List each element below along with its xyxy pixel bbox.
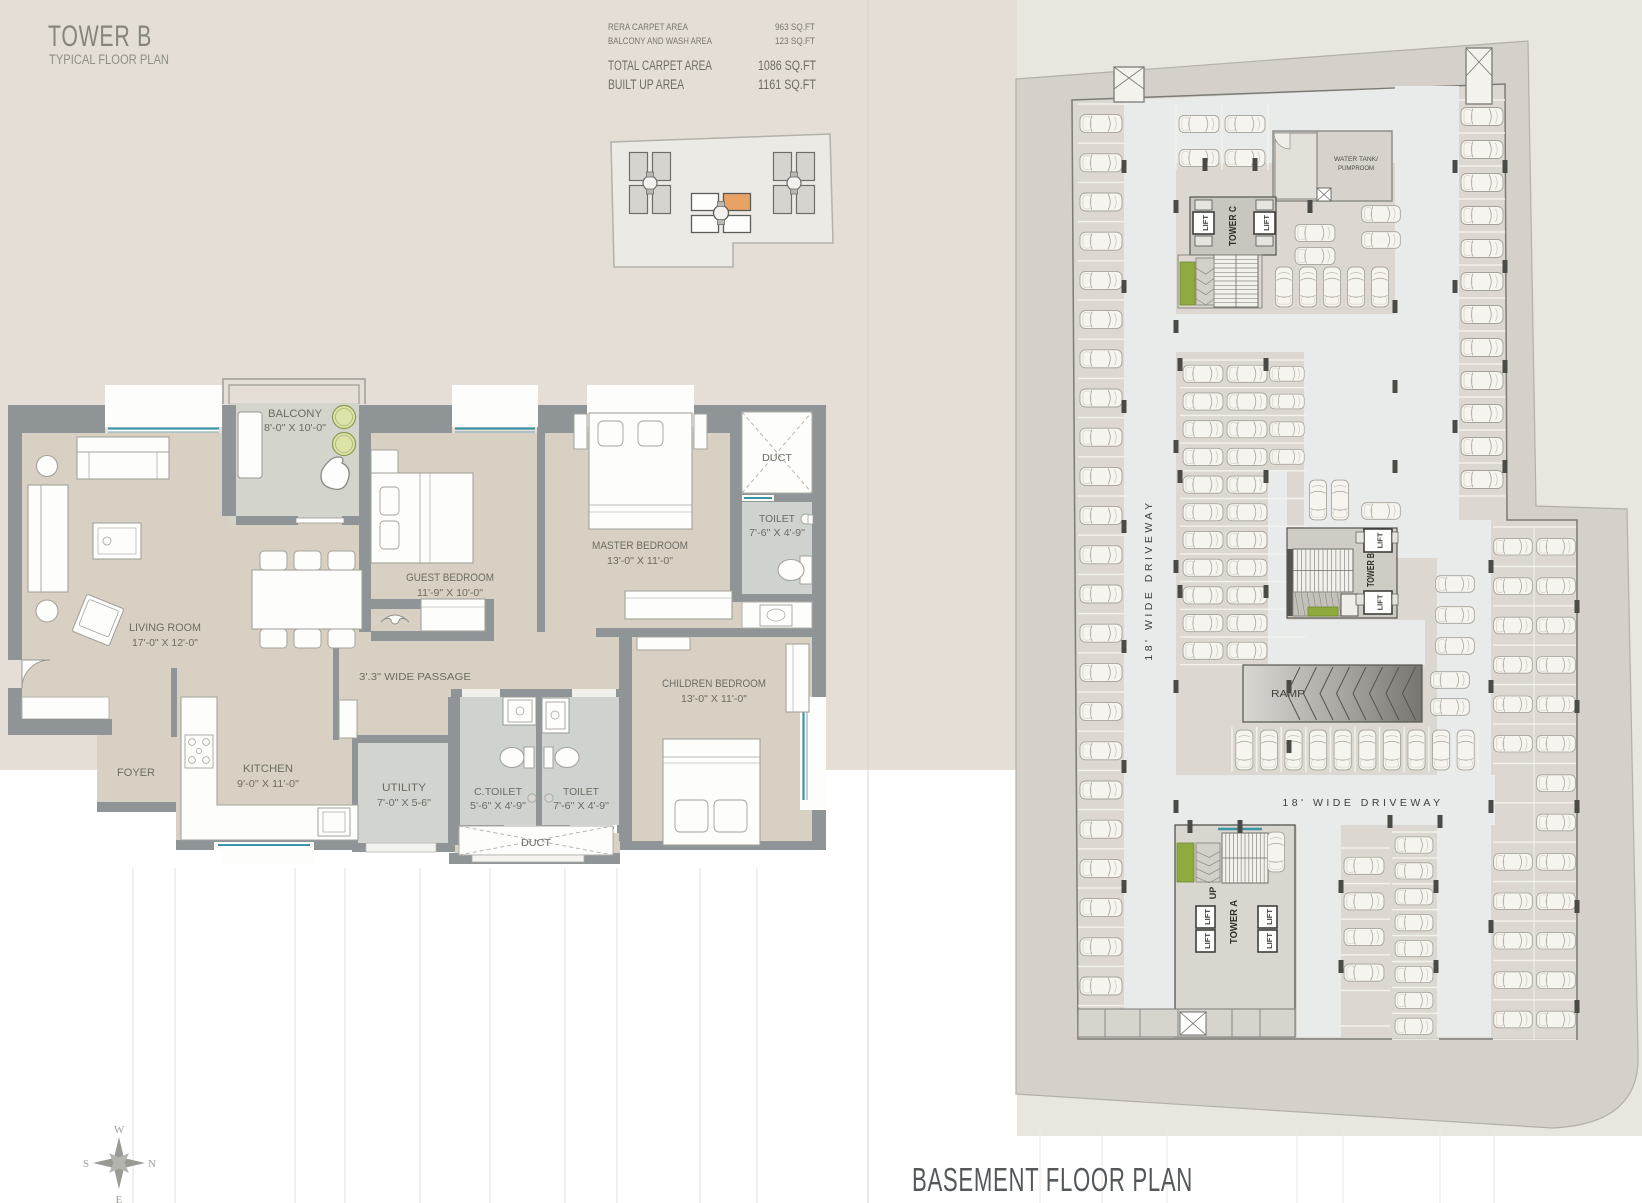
svg-text:CHILDREN BEDROOM: CHILDREN BEDROOM	[662, 678, 766, 690]
svg-text:8'-0" X 10'-0": 8'-0" X 10'-0"	[264, 422, 326, 434]
svg-text:KITCHEN: KITCHEN	[243, 763, 293, 775]
svg-text:LIFT: LIFT	[1203, 933, 1212, 949]
svg-text:LIFT: LIFT	[1203, 909, 1212, 925]
svg-text:13'-0" X 11'-0": 13'-0" X 11'-0"	[607, 555, 673, 567]
svg-text:PUMPROOM: PUMPROOM	[1338, 165, 1374, 172]
svg-text:TOWER B: TOWER B	[1365, 553, 1377, 587]
svg-text:18' WIDE DRIVEWAY: 18' WIDE DRIVEWAY	[1143, 499, 1155, 660]
svg-text:N: N	[148, 1158, 156, 1170]
svg-text:LIVING ROOM: LIVING ROOM	[129, 622, 201, 634]
svg-text:C.TOILET: C.TOILET	[474, 786, 523, 798]
svg-text:7'-0" X 5-6": 7'-0" X 5-6"	[377, 797, 431, 809]
svg-text:GUEST BEDROOM: GUEST BEDROOM	[406, 572, 494, 584]
svg-text:LIFT: LIFT	[1262, 215, 1271, 231]
svg-text:LIFT: LIFT	[1201, 215, 1210, 231]
svg-text:UTILITY: UTILITY	[382, 782, 427, 794]
svg-text:RERA CARPET AREA: RERA CARPET AREA	[608, 22, 689, 33]
svg-text:TOTAL CARPET AREA: TOTAL CARPET AREA	[608, 58, 712, 73]
svg-text:E: E	[116, 1194, 123, 1203]
svg-text:LIFT: LIFT	[1265, 909, 1274, 925]
svg-text:963 SQ.FT: 963 SQ.FT	[775, 22, 815, 33]
svg-text:DUCT: DUCT	[762, 452, 793, 464]
svg-text:WATER TANK/: WATER TANK/	[1334, 156, 1378, 163]
svg-text:5'-6" X 4'-9": 5'-6" X 4'-9"	[470, 801, 526, 812]
svg-text:LIFT: LIFT	[1265, 933, 1274, 949]
svg-text:BUILT UP AREA: BUILT UP AREA	[608, 77, 684, 92]
svg-text:TOILET: TOILET	[759, 513, 796, 525]
svg-text:TOWER A: TOWER A	[1228, 900, 1240, 944]
svg-text:MASTER BEDROOM: MASTER BEDROOM	[592, 540, 688, 552]
svg-text:1161 SQ.FT: 1161 SQ.FT	[758, 77, 816, 92]
svg-text:3'.3" WIDE PASSAGE: 3'.3" WIDE PASSAGE	[359, 671, 471, 683]
svg-text:7'-6" X 4'-9": 7'-6" X 4'-9"	[749, 528, 805, 539]
svg-text:17'-0" X 12'-0": 17'-0" X 12'-0"	[132, 637, 198, 649]
svg-text:BALCONY AND WASH AREA: BALCONY AND WASH AREA	[608, 36, 713, 47]
svg-text:W: W	[114, 1124, 125, 1136]
svg-text:UP: UP	[1208, 887, 1218, 900]
svg-text:BALCONY: BALCONY	[268, 408, 323, 420]
svg-text:S: S	[83, 1158, 89, 1170]
svg-text:9'-0" X 11'-0": 9'-0" X 11'-0"	[237, 778, 299, 790]
svg-text:TOWER C: TOWER C	[1228, 206, 1239, 246]
svg-text:LIFT: LIFT	[1375, 594, 1384, 610]
svg-text:13'-0" X 11'-0": 13'-0" X 11'-0"	[681, 693, 747, 705]
svg-text:7'-6" X 4'-9": 7'-6" X 4'-9"	[553, 801, 609, 812]
svg-text:DUCT: DUCT	[521, 837, 552, 849]
svg-text:123 SQ.FT: 123 SQ.FT	[775, 36, 815, 47]
svg-text:11'-9" X 10'-0": 11'-9" X 10'-0"	[417, 587, 483, 599]
svg-text:TOILET: TOILET	[563, 786, 600, 798]
svg-text:1086 SQ.FT: 1086 SQ.FT	[758, 58, 816, 73]
svg-text:FOYER: FOYER	[117, 767, 155, 779]
svg-text:TOWER B: TOWER B	[48, 20, 152, 53]
svg-text:LIFT: LIFT	[1375, 532, 1384, 548]
svg-text:TYPICAL FLOOR PLAN: TYPICAL FLOOR PLAN	[49, 52, 169, 67]
svg-text:BASEMENT FLOOR PLAN: BASEMENT FLOOR PLAN	[912, 1162, 1193, 1199]
svg-text:18' WIDE DRIVEWAY: 18' WIDE DRIVEWAY	[1282, 797, 1443, 809]
